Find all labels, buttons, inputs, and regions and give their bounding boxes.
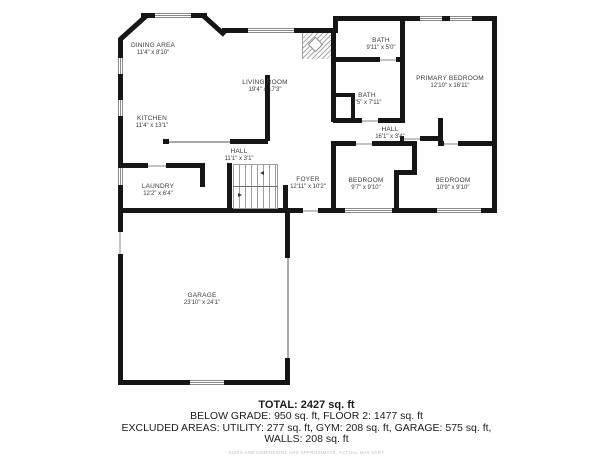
room-label-bath1: BATH 9'11" x 5'0" — [346, 37, 416, 52]
room-dims: 19'4" x 17'3" — [230, 87, 300, 94]
laundry-door — [148, 165, 166, 167]
wall-laundry-right — [200, 163, 205, 187]
room-dims: 11'4" x 13'1" — [117, 123, 187, 130]
room-dims: 12'10" x 16'11" — [405, 83, 495, 90]
room-label-kitchen: KITCHEN 11'4" x 13'1" — [117, 115, 187, 130]
wall-garage-left-upper — [118, 213, 123, 232]
wall-bedrooms-divider-upper — [412, 141, 417, 173]
room-label-hall2: HALL 16'1" x 3'4" — [355, 126, 425, 141]
bath2-door — [362, 120, 378, 122]
room-label-garage: GARAGE 23'10" x 24'1" — [167, 292, 237, 307]
room-name: BEDROOM — [331, 177, 401, 185]
room-name: BEDROOM — [418, 177, 488, 185]
wall-garage-right-upper — [285, 213, 290, 258]
wall-hall2-endcap — [438, 118, 443, 141]
wall-bedroom2-top-2 — [458, 141, 497, 146]
room-name: LIVING ROOM — [230, 79, 300, 87]
wall-bedroom1-left — [331, 141, 336, 208]
bedroom2-door — [444, 143, 458, 145]
garage-door-opening — [287, 258, 289, 358]
room-dims: 11'4" x 8'10" — [118, 50, 188, 57]
wall-hall2-top-2 — [378, 118, 405, 123]
wall-hall1-top — [230, 139, 268, 144]
floor-plan: DINING AREA 11'4" x 8'10" LIVING ROOM 19… — [0, 0, 613, 460]
room-dims: 10'9" x 9'10" — [418, 185, 488, 192]
hall1-opening-line — [169, 141, 230, 143]
room-dims: 7'5" x 7'11" — [332, 100, 402, 107]
window-bedroom1-bottom — [345, 208, 392, 213]
room-label-dining: DINING AREA 11'4" x 8'10" — [118, 42, 188, 57]
front-door — [303, 210, 318, 212]
bedroom1-door — [356, 143, 372, 145]
room-name: DINING AREA — [118, 42, 188, 50]
room-name: KITCHEN — [117, 115, 187, 123]
room-name: HALL — [204, 148, 274, 156]
wall-bay-diagonal-right — [201, 13, 227, 37]
room-dims: 9'11" x 5'0" — [346, 45, 416, 52]
room-dims: 9'7" x 9'10" — [331, 185, 401, 192]
window-garage-bottom — [190, 380, 224, 385]
stair-direction-arrow-2 — [260, 171, 264, 175]
wall-right — [492, 16, 497, 213]
wall-top-right — [336, 16, 497, 21]
room-name: GARAGE — [167, 292, 237, 300]
room-label-primary-bedroom: PRIMARY BEDROOM 12'10" x 16'11" — [405, 75, 495, 90]
window-bedroom2-bottom — [437, 208, 481, 213]
room-dims: 23'10" x 24'1" — [167, 300, 237, 307]
room-label-living: LIVING ROOM 19'4" x 17'3" — [230, 79, 300, 94]
wall-hall2-top-1 — [333, 118, 362, 123]
room-dims: 11'1" x 3'1" — [204, 156, 274, 163]
wall-garage-left-lower — [118, 254, 123, 385]
walls-line: WALLS: 208 sq. ft — [0, 434, 613, 446]
room-name: PRIMARY BEDROOM — [405, 75, 495, 83]
room-name: BATH — [346, 37, 416, 45]
wall-garage-right-lower — [285, 358, 290, 385]
room-label-bath2: BATH 7'5" x 7'11" — [332, 92, 402, 107]
area-summary: TOTAL: 2427 sq. ft BELOW GRADE: 950 sq. … — [0, 399, 613, 455]
disclaimer-text: SIZES AND DIMENSIONS ARE APPROXIMATE, AC… — [0, 450, 613, 455]
garage-side-door — [119, 232, 121, 254]
wall-bedroom1-top-2 — [372, 141, 417, 146]
room-name: LAUNDRY — [123, 183, 193, 191]
room-label-laundry: LAUNDRY 12'2" x 6'4" — [123, 183, 193, 198]
window-kitchen-left — [118, 100, 123, 116]
room-name: HALL — [355, 126, 425, 134]
wall-wing-left — [331, 33, 336, 122]
window-primary-top-1 — [420, 16, 442, 21]
wall-laundry-top-1 — [118, 163, 148, 168]
room-label-bedroom1: BEDROOM 9'7" x 9'10" — [331, 177, 401, 192]
staircase-landing-line — [233, 186, 278, 187]
room-label-hall1: HALL 11'1" x 3'1" — [204, 148, 274, 163]
room-label-bedroom2: BEDROOM 10'9" x 9'10" — [418, 177, 488, 192]
room-dims: 12'2" x 6'4" — [123, 191, 193, 198]
window-living-top — [248, 28, 294, 33]
wall-bath1-bottom — [333, 57, 380, 62]
room-dims: 16'1" x 3'4" — [355, 134, 425, 141]
window-primary-top-2 — [450, 16, 472, 21]
wall-stair-left — [227, 163, 232, 212]
room-name: BATH — [332, 92, 402, 100]
stair-direction-arrow-1 — [238, 193, 242, 197]
window-bay — [155, 13, 191, 18]
below-grade-line: BELOW GRADE: 950 sq. ft, FLOOR 2: 1477 s… — [0, 411, 613, 423]
window-dining-left — [118, 58, 123, 74]
